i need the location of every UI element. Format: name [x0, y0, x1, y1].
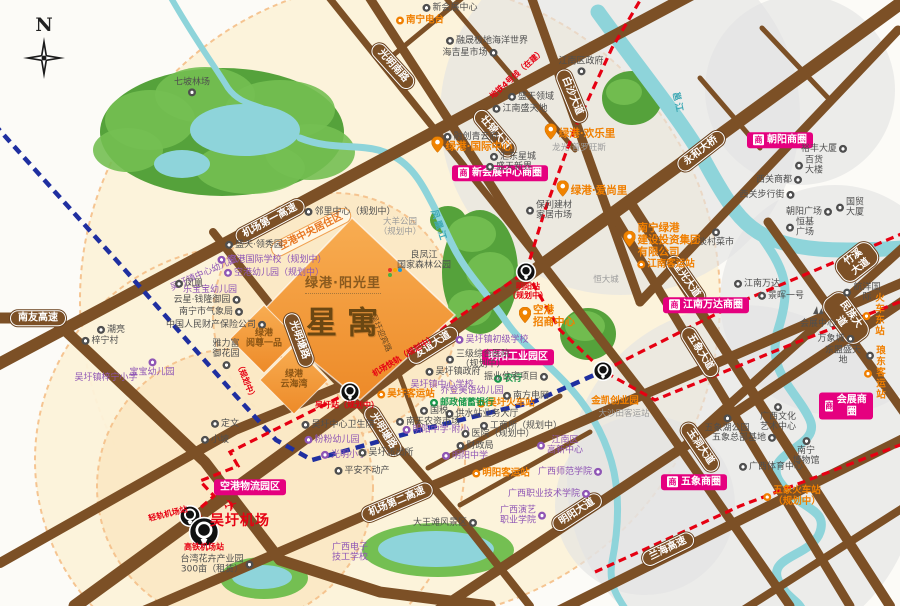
label-text: 广西师范学院: [538, 467, 592, 477]
map-poi-label: 绿港·爱尚里: [557, 180, 628, 199]
poi-marker-icon: [442, 452, 450, 460]
label-text: 兰海高速: [639, 530, 696, 568]
poi-marker-icon: [503, 392, 511, 400]
poi-marker-icon: [774, 403, 782, 411]
label-text: 吴圩派出所: [368, 448, 413, 458]
poi-marker-icon: [222, 361, 230, 369]
label-text: 雅力富 御花园: [212, 339, 239, 360]
map-poi-label: 云星·钱隆御园: [174, 295, 241, 305]
label-text: 南宁电台: [406, 16, 444, 27]
map-poi-label: 小坡: [201, 435, 229, 445]
location-pin-icon: [624, 230, 636, 246]
map-poi-label: 盛天·领秀园: [225, 240, 283, 250]
label-text: 景晖一号: [768, 291, 804, 301]
brand-logo-dots-icon: [388, 268, 402, 277]
location-map: 机场第一高速南友高速友谊大道永和大桥机场第二高速兰海高速明阳大道竹溪大道民族大道…: [0, 0, 900, 606]
map-poi-label: 广西文化 艺术中心: [760, 403, 796, 433]
map-poi-label: 广西体育中心: [739, 462, 803, 472]
map-poi-label: 汇东星城: [490, 152, 536, 162]
map-poi-label: 南宁市气象局: [179, 307, 243, 317]
map-poi-label: 七坡林场: [174, 77, 210, 96]
map-poi-label: 明阳站 （规划中）: [508, 282, 548, 300]
label-text: 粉粉幼儿园: [314, 435, 359, 445]
label-text: 竹溪大道: [832, 238, 883, 286]
map-poi-label: 大羊公园 （规划中）: [379, 218, 422, 238]
poi-marker-icon: [637, 261, 645, 269]
poi-marker-icon: [443, 133, 451, 141]
location-pin-icon: [432, 136, 444, 152]
poi-marker-icon: [490, 49, 498, 57]
label-text: 大王滩风景区: [413, 518, 467, 528]
label-text: 吴圩镇初级学校: [465, 335, 528, 345]
map-poi-label: 金凯创业园: [591, 397, 639, 408]
map-poi-label: 空港 招商中心: [519, 304, 575, 328]
label-text: 空港国际学校（规划中）: [227, 255, 326, 265]
label-text: 台湾花卉产业园 300亩（租赁）: [180, 555, 243, 576]
label-text: 江南区政府: [558, 56, 603, 66]
map-poi-label: 万象城: [817, 334, 854, 344]
poi-marker-icon: [425, 368, 433, 376]
label-text: 盛天领域: [518, 92, 554, 102]
location-pin-icon: [519, 306, 531, 322]
poi-marker-icon: [824, 208, 832, 216]
poi-marker-icon: [843, 289, 851, 297]
poi-marker-icon: [768, 434, 776, 442]
label-text: 吴圩客运站: [387, 390, 435, 401]
label-text: 五象总部基地: [712, 433, 766, 443]
map-poi-label: 淡村菜市: [698, 228, 734, 247]
map-poi-label: 雅力富 御花园: [212, 339, 239, 369]
label-text: 南宁市气象局: [179, 307, 233, 317]
poi-marker-icon: [538, 512, 546, 520]
poi-marker-icon: [712, 228, 720, 236]
label-text: 乔登美语幼儿园: [440, 386, 503, 396]
location-pin-icon: [557, 180, 569, 196]
label-text: 邻里中心（规划中）: [314, 207, 395, 217]
map-poi-label: 吴圩镇梓宁小学: [74, 373, 137, 383]
poi-marker-icon: [508, 93, 516, 101]
label-text: 航洋国际: [853, 283, 881, 304]
poi-marker-icon: [211, 420, 219, 428]
map-poi-label: 邻里中心（规划中）: [304, 207, 395, 217]
badge-mall-icon: 商: [667, 477, 678, 488]
map-poi-label: 江南盛天地: [492, 104, 547, 114]
district-badge: 空港物流园区: [214, 479, 286, 495]
poi-marker-icon: [446, 37, 454, 45]
label-text: 定文: [221, 419, 239, 429]
poi-marker-icon: [582, 490, 590, 498]
label-text: 南宁绿港 建设投资集团 有限公司: [638, 222, 701, 258]
map-poi-label: 吴圩镇初级学校: [455, 335, 528, 345]
label-text: 明阳中学: [452, 451, 488, 461]
compass-rose-icon: [22, 36, 66, 80]
label-text: 江南万达: [744, 279, 780, 289]
map-poi-label: 航洋国际: [843, 283, 881, 304]
map-poi-label: 邕江: [670, 91, 685, 115]
label-text: 恒基 广场: [796, 218, 814, 239]
map-poi-label: 景晖一号: [758, 291, 804, 301]
poi-marker-icon: [358, 449, 366, 457]
map-poi-label: 龙光·普罗旺斯: [552, 144, 606, 154]
map-poi-label: 明阳中学: [442, 451, 488, 461]
poi-marker-icon: [763, 493, 771, 501]
map-poi-label: 广西电子 技工学校: [332, 543, 368, 564]
map-poi-label: 盛天领域: [508, 92, 554, 102]
map-poi-label: 潮亮: [97, 325, 125, 335]
map-poi-label: 东盟盛天地: [822, 346, 874, 367]
poi-marker-icon: [486, 163, 494, 171]
label-text: 商五象商圈: [661, 474, 727, 490]
poi-marker-icon: [403, 426, 411, 434]
label-text: 东盟盛天地: [822, 346, 864, 367]
label-text: 潮亮: [107, 325, 125, 335]
poi-marker-icon: [864, 370, 872, 378]
map-poi-label: 恒基 广场: [786, 218, 814, 239]
poi-marker-icon: [377, 391, 385, 399]
label-text: 海吉星市场: [442, 48, 487, 58]
label-text: 融晟极地海洋世界: [456, 36, 528, 46]
label-text: 淡村菜市: [698, 237, 734, 247]
label-text: 高铁机场站: [184, 542, 224, 551]
label-text: 中国人民财产保险公司: [166, 320, 256, 330]
map-poi-label: 新会展中心: [422, 3, 477, 13]
map-poi-label: 保利建材 家居市场: [526, 201, 572, 222]
map-poi-label: 南宁电台: [396, 16, 444, 27]
label-text: 医院（规划中）: [471, 429, 534, 439]
map-poi-label: 西关步行街: [739, 190, 794, 200]
label-text: 永和大桥: [674, 128, 728, 175]
poi-marker-icon: [739, 463, 747, 471]
poi-marker-icon: [786, 224, 794, 232]
label-text: 七坡林场: [174, 77, 210, 87]
poi-marker-icon: [420, 407, 428, 415]
label-text: 轻轨机场站: [147, 505, 188, 524]
poi-marker-icon: [446, 356, 454, 364]
poi-marker-icon: [734, 280, 742, 288]
label-text: 西关步行街: [739, 190, 784, 200]
map-poi-label: 吴圩客运站: [377, 390, 435, 401]
poi-marker-icon: [188, 89, 196, 97]
map-poi-label: 西关商都: [756, 175, 802, 185]
map-poi-label: 朝阳广场: [786, 207, 832, 217]
poi-marker-icon: [225, 241, 233, 249]
label-text: 国贸 大厦: [846, 198, 864, 219]
map-poi-label: 广西职业技术学院: [508, 489, 590, 499]
road-label: 白沙大道: [554, 67, 589, 125]
label-text: 江南区 高新中心: [547, 436, 583, 457]
label-text: 空港物流园区: [214, 479, 286, 495]
label-text: 吴圩机场: [210, 513, 270, 529]
label-text: 盛天·领秀园: [235, 240, 283, 250]
poi-marker-icon: [445, 410, 453, 418]
map-poi-label: 梓宁村: [81, 336, 118, 346]
badge-mall-icon: 商: [458, 168, 469, 179]
badge-mall-icon: 商: [753, 135, 764, 146]
road-label: 光明南路: [369, 40, 418, 92]
poi-marker-icon: [540, 373, 548, 381]
map-poi-label: 江南区政府: [558, 56, 603, 75]
poi-marker-icon: [490, 153, 498, 161]
map-poi-label: 江南区 高新中心: [537, 436, 583, 457]
map-poi-label: 融晟极地海洋世界: [446, 36, 528, 46]
label-text: 金凯创业园: [591, 397, 639, 408]
poi-marker-icon: [469, 519, 477, 527]
label-text: 光明南路: [369, 40, 418, 92]
map-poi-label: 百货 大楼: [795, 156, 823, 177]
map-poi-label: 轻轨机场站: [147, 505, 188, 524]
map-labels: 机场第一高速南友高速友谊大道永和大桥机场第二高速兰海高速明阳大道竹溪大道民族大道…: [0, 0, 900, 606]
map-poi-label: 五象总部基地: [712, 433, 776, 443]
map-poi-label: 粉粉幼儿园: [304, 435, 359, 445]
poi-marker-icon: [472, 470, 480, 478]
poi-marker-icon: [758, 292, 766, 300]
map-poi-label: 绿港 阅尊一品: [246, 329, 282, 350]
map-poi-label: 吴圩站（规划中）: [315, 400, 379, 409]
poi-marker-icon: [526, 207, 534, 215]
label-text: 保利建材 家居市场: [536, 201, 572, 222]
map-poi-label: 融创青云府: [443, 132, 498, 142]
poi-marker-icon: [839, 145, 847, 153]
road-label: 竹溪大道: [832, 238, 883, 286]
poi-marker-icon: [201, 436, 209, 444]
poi-marker-icon: [246, 561, 254, 569]
map-poi-label: 江南客运站: [637, 260, 695, 271]
poi-marker-icon: [455, 336, 463, 344]
map-poi-label: 良凤江 国家森林公园: [397, 251, 451, 272]
label-text: 百货 大楼: [805, 156, 823, 177]
road-label: 五象大道: [679, 324, 722, 380]
label-text: 供水站业务大厅: [455, 409, 518, 419]
label-text: 广西电子 技工学校: [332, 543, 368, 564]
label-text: 良凤江 国家森林公园: [397, 251, 451, 272]
map-poi-label: 海吉星市场: [442, 48, 497, 58]
label-text: 空港 招商中心: [533, 304, 575, 328]
map-poi-label: 高铁机场站: [184, 542, 224, 551]
poi-marker-icon: [537, 442, 545, 450]
map-poi-label: 南宁绿港 建设投资集团 有限公司: [624, 222, 701, 258]
label-text: 绿港 云海湾: [280, 370, 307, 391]
label-text: 汇东星城: [500, 152, 536, 162]
poi-marker-icon: [304, 436, 312, 444]
map-poi-label: 五象湖公园: [704, 414, 749, 433]
poi-marker-icon: [321, 451, 329, 459]
label-text: 财政局: [466, 441, 493, 451]
district-badge: 商五象商圈: [661, 474, 727, 490]
road-label: 南友高速: [10, 310, 66, 326]
project-brand-logo: 绿港·阳光里: [305, 272, 381, 294]
road-label: 永和大桥: [674, 128, 728, 175]
poi-marker-icon: [456, 442, 464, 450]
label-text: 江南盛天地: [502, 104, 547, 114]
road-label: 兰海高速: [639, 530, 696, 568]
label-text: 大沙田客运站: [598, 410, 649, 420]
label-text: 振业住宅项目: [484, 372, 538, 382]
label-text: 万象城: [817, 334, 844, 344]
poi-marker-icon: [148, 358, 156, 366]
project-name: 星寓: [306, 298, 388, 343]
compass: N: [22, 14, 66, 84]
label-text: 西关商都: [756, 175, 792, 185]
map-poi-label: 乔登美语幼儿园: [440, 386, 503, 396]
poi-marker-icon: [795, 162, 803, 170]
label-text: 商江南万达商圈: [663, 297, 749, 313]
label-text: 白沙大道: [554, 67, 589, 125]
map-poi-label: 绿港 云海湾: [280, 370, 307, 391]
poi-marker-icon: [492, 105, 500, 113]
label-text: 会展中心: [800, 320, 836, 330]
label-text: 凤凰江: [428, 209, 448, 244]
label-text: 邕江: [670, 91, 685, 115]
label-text: 江南客运站: [647, 260, 695, 271]
poi-marker-icon: [847, 335, 855, 343]
label-text: 广西文化 艺术中心: [760, 412, 796, 433]
map-poi-label: 供水站业务大厅: [445, 409, 518, 419]
poi-marker-icon: [304, 208, 312, 216]
label-text: 五象大道: [679, 324, 722, 380]
map-poi-label: 裕丰大厦: [801, 144, 847, 154]
map-poi-label: 定文: [211, 419, 239, 429]
map-poi-label: 振业住宅项目: [484, 372, 548, 382]
label-text: 三级综合医院 （规划中）: [456, 350, 510, 371]
poi-marker-icon: [235, 308, 243, 316]
label-text: 新会展中心: [432, 3, 477, 13]
poi-marker-icon: [232, 296, 240, 304]
map-poi-label: 明阳客运站: [472, 469, 530, 480]
label-text: 融创青云府: [453, 132, 498, 142]
map-poi-label: 广西师范学院: [538, 467, 602, 477]
label-text: 吴圩站（规划中）: [315, 400, 379, 409]
poi-marker-icon: [396, 17, 404, 25]
map-poi-label: 凤凰江: [428, 209, 448, 244]
label-text: 吴圩中心卫生院: [311, 420, 374, 430]
map-poi-label: 吴圩中心卫生院: [301, 420, 374, 430]
label-text: 广西演艺 职业学院: [500, 506, 536, 527]
poi-marker-icon: [802, 437, 810, 445]
label-text: 凤凰: [185, 279, 203, 289]
location-pin-icon: [545, 123, 557, 139]
poi-marker-icon: [787, 191, 795, 199]
label-text: 绿港 阅尊一品: [246, 329, 282, 350]
label-text: 龙光·普罗旺斯: [552, 144, 606, 154]
poi-marker-icon: [594, 468, 602, 476]
poi-marker-icon: [97, 326, 105, 334]
map-poi-label: 国税: [420, 406, 448, 416]
label-text: 广西体育中心: [749, 462, 803, 472]
badge-mall-icon: 商: [825, 401, 833, 412]
label-text: 南友高速: [10, 310, 66, 326]
poi-marker-icon: [81, 337, 89, 345]
map-poi-label: 台湾花卉产业园 300亩（租赁）: [180, 555, 253, 576]
map-poi-label: 会展中心: [800, 304, 836, 330]
poi-marker-icon: [396, 418, 404, 426]
label-text: 恒大城: [593, 276, 619, 286]
poi-marker-icon: [863, 312, 871, 320]
poi-marker-icon: [836, 204, 844, 212]
poi-marker-icon: [577, 68, 585, 76]
label-text: 平安不动产: [344, 466, 389, 476]
label-text: 盛天新界: [496, 162, 532, 172]
label-text: 大羊公园 （规划中）: [379, 218, 422, 238]
poi-marker-icon: [422, 4, 430, 12]
map-poi-label: 吴圩派出所: [358, 448, 413, 458]
poi-marker-icon: [334, 467, 342, 475]
poi-marker-icon: [301, 421, 309, 429]
district-badge: 商江南万达商圈: [663, 297, 749, 313]
map-poi-label: 国贸 大厦: [836, 198, 864, 219]
compass-n-label: N: [22, 14, 66, 36]
map-poi-label: 大沙田客运站: [598, 410, 649, 420]
label-text: 云星·钱隆御园: [174, 295, 231, 305]
map-poi-label: 大王滩风景区: [413, 518, 477, 528]
map-poi-label: 凤凰: [175, 279, 203, 289]
map-poi-label: 五象火车站 （规划中）: [763, 486, 821, 508]
map-poi-label: 南方电网: [503, 391, 549, 401]
poi-marker-icon: [794, 176, 802, 184]
label-text: 吴圩镇梓宁小学: [74, 373, 137, 383]
label-text: 绿港·爱尚里: [571, 184, 628, 196]
convention-center-icon: [811, 304, 824, 315]
label-text: 朝阳广场: [786, 207, 822, 217]
label-text: 明阳客运站: [482, 469, 530, 480]
label-text: 邮政储蓄银行: [440, 398, 494, 408]
label-text: 五象火车站 （规划中）: [773, 486, 821, 508]
label-text: 广西职业技术学院: [508, 489, 580, 499]
label-text: 绿港·欢乐里: [559, 127, 616, 139]
map-poi-label: 广西演艺 职业学院: [500, 506, 546, 527]
badge-mall-icon: 商: [669, 300, 680, 311]
label-text: 裕丰大厦: [801, 144, 837, 154]
poi-marker-icon: [461, 430, 469, 438]
map-poi-label: 平安不动产: [334, 466, 389, 476]
map-poi-label: 财政局: [456, 441, 493, 451]
map-poi-label: 医院（规划中）: [461, 429, 534, 439]
map-poi-label: 盛天新界: [486, 162, 532, 172]
map-poi-label: 恒大城: [593, 276, 619, 286]
poi-marker-icon: [723, 414, 731, 422]
map-poi-label: 吴圩机场: [210, 513, 270, 529]
map-poi-label: 江南万达: [734, 279, 780, 289]
label-text: 南方电网: [513, 391, 549, 401]
map-poi-label: 绿港·欢乐里: [545, 123, 616, 142]
label-text: 小坡: [211, 435, 229, 445]
map-poi-label: 三级综合医院 （规划中）: [446, 350, 510, 371]
poi-marker-icon: [866, 352, 874, 360]
label-text: 琅东客运站: [874, 347, 888, 402]
label-text: 明阳站 （规划中）: [508, 282, 548, 300]
poi-marker-icon: [175, 280, 183, 288]
label-text: 梓宁村: [91, 336, 118, 346]
